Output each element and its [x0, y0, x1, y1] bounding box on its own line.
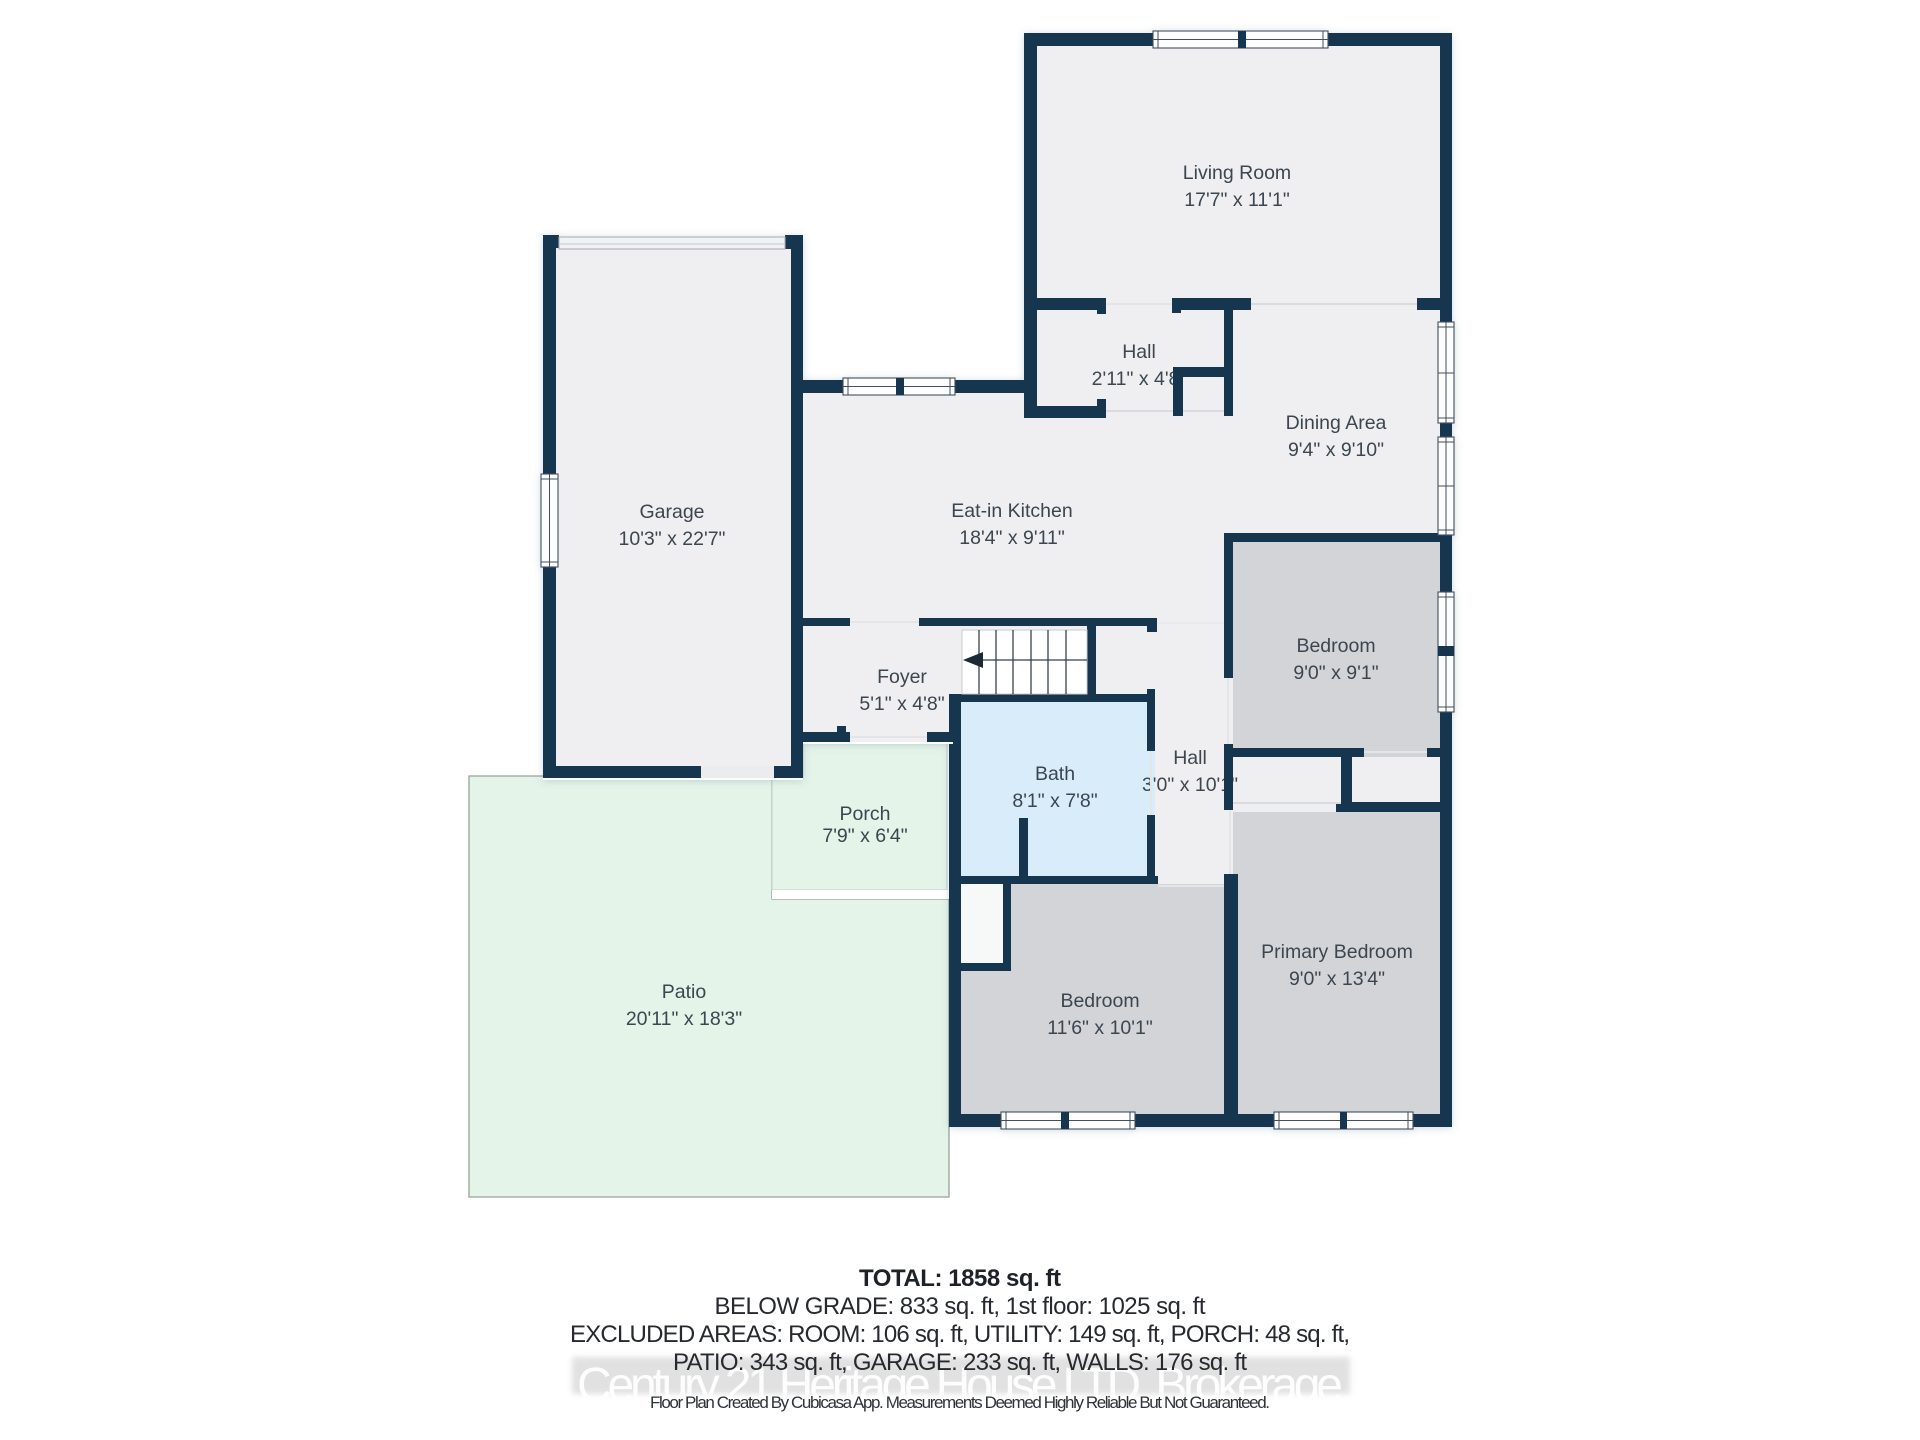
svg-text:7'9" x 6'4": 7'9" x 6'4" [822, 825, 907, 847]
svg-text:Eat-in Kitchen: Eat-in Kitchen [951, 500, 1072, 522]
svg-text:9'4" x 9'10": 9'4" x 9'10" [1288, 439, 1384, 461]
svg-text:2'11" x 4'8": 2'11" x 4'8" [1092, 368, 1187, 390]
svg-text:Hall: Hall [1173, 747, 1207, 769]
svg-text:Patio: Patio [662, 981, 707, 1003]
svg-text:Floor Plan Created By Cubicasa: Floor Plan Created By Cubicasa App. Meas… [650, 1393, 1270, 1412]
svg-text:TOTAL: 1858 sq. ft: TOTAL: 1858 sq. ft [859, 1265, 1061, 1292]
svg-text:Primary Bedroom: Primary Bedroom [1261, 941, 1413, 963]
svg-text:Bath: Bath [1035, 763, 1075, 785]
svg-text:EXCLUDED AREAS: ROOM: 106 sq.: EXCLUDED AREAS: ROOM: 106 sq. ft, UTILIT… [570, 1321, 1350, 1348]
svg-text:9'0" x 9'1": 9'0" x 9'1" [1293, 662, 1378, 684]
svg-text:3'0" x 10'1": 3'0" x 10'1" [1142, 774, 1238, 796]
svg-text:Bedroom: Bedroom [1060, 990, 1139, 1012]
svg-text:BELOW GRADE: 833 sq. ft, 1st f: BELOW GRADE: 833 sq. ft, 1st floor: 1025… [715, 1293, 1206, 1320]
svg-text:Bedroom: Bedroom [1296, 635, 1375, 657]
svg-text:PATIO: 343 sq. ft, GARAGE: 233: PATIO: 343 sq. ft, GARAGE: 233 sq. ft, W… [673, 1349, 1247, 1376]
svg-text:Living Room: Living Room [1183, 162, 1291, 184]
svg-text:Porch: Porch [840, 803, 891, 825]
svg-text:17'7" x 11'1": 17'7" x 11'1" [1184, 189, 1290, 211]
svg-text:5'1" x 4'8": 5'1" x 4'8" [859, 693, 944, 715]
svg-text:10'3" x 22'7": 10'3" x 22'7" [619, 528, 726, 550]
svg-text:Hall: Hall [1122, 341, 1156, 363]
svg-text:9'0" x 13'4": 9'0" x 13'4" [1289, 968, 1385, 990]
svg-text:18'4" x 9'11": 18'4" x 9'11" [959, 527, 1065, 549]
svg-text:Garage: Garage [639, 501, 704, 523]
svg-text:Dining Area: Dining Area [1286, 412, 1387, 434]
svg-text:8'1" x 7'8": 8'1" x 7'8" [1012, 790, 1097, 812]
svg-text:Foyer: Foyer [877, 666, 927, 688]
svg-text:11'6" x 10'1": 11'6" x 10'1" [1047, 1017, 1153, 1039]
svg-text:20'11" x 18'3": 20'11" x 18'3" [626, 1008, 742, 1030]
